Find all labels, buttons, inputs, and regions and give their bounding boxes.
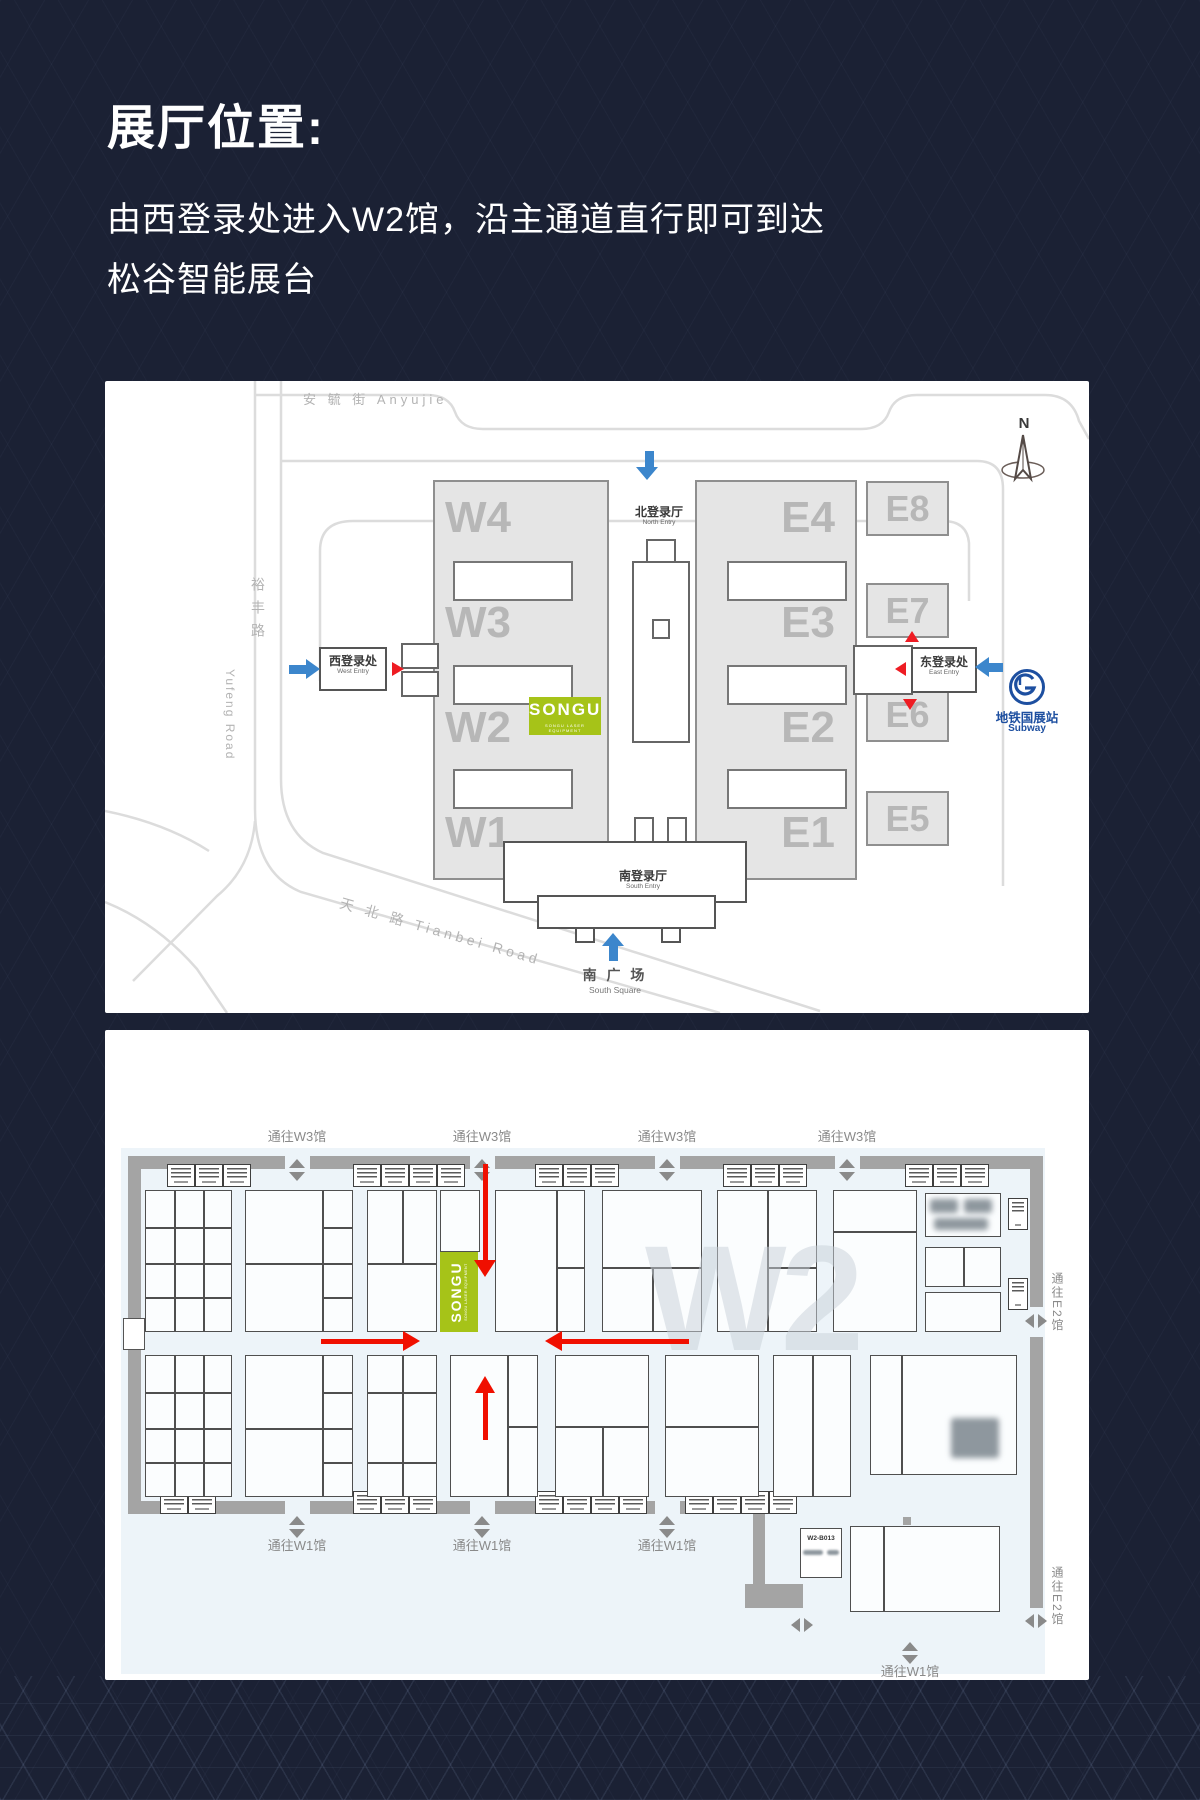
songu-booth: SONGU SONGU LASER EQUIPMENT <box>440 1252 478 1332</box>
west-entry-cn: 西登录处 <box>321 654 385 668</box>
booth-divider <box>883 1527 885 1611</box>
booth-divider <box>322 1227 352 1229</box>
songu-booth-text: SONGU <box>449 1261 464 1322</box>
south-entry-en: South Entry <box>583 883 703 891</box>
gate-label-e2: 通往E2馆 <box>1049 1272 1066 1333</box>
gate-arrow-icon <box>839 1159 855 1181</box>
overview-map-panel: 安 毓 街 Anyujie 裕丰路 Yufeng Road 天 北 路 Tian… <box>105 381 1089 1013</box>
booth-divider <box>556 1191 558 1331</box>
west-connector <box>401 643 439 669</box>
booth-divider <box>507 1426 537 1428</box>
west-entry-arrowhead-icon <box>306 659 320 679</box>
booth <box>495 1190 585 1332</box>
corridor-box <box>652 619 670 639</box>
booth-label <box>591 1164 619 1187</box>
booth-divider <box>203 1191 205 1331</box>
booth-label <box>905 1164 933 1187</box>
songu-booth-tagline: SONGU LASER EQUIPMENT <box>464 1261 469 1322</box>
booth-label <box>223 1164 251 1187</box>
road-label-yufeng-cn: 裕丰路 <box>248 577 268 646</box>
east-entry-en: East Entry <box>913 669 975 677</box>
songu-booth-logo: SONGU SONGU LASER EQUIPMENT <box>449 1261 469 1322</box>
booth-divider <box>146 1462 231 1464</box>
gate-label-w3: 通往W3馆 <box>432 1126 532 1145</box>
hall-label-w1: W1 <box>445 808 511 858</box>
booth <box>145 1355 232 1497</box>
booth-label <box>563 1164 591 1187</box>
booth-label <box>933 1164 961 1187</box>
gate-arrow-icon <box>1025 1614 1047 1628</box>
pillar <box>903 1517 911 1525</box>
booth-divider <box>146 1227 231 1229</box>
intro-line-1: 由西登录处进入W2馆，沿主通道直行即可到达 <box>107 192 825 241</box>
east-entry-box: 东登录处 East Entry <box>911 647 977 693</box>
booth <box>555 1355 649 1497</box>
gate-arrow-icon <box>791 1618 813 1632</box>
hall-e5: E5 <box>866 791 949 846</box>
booth-divider <box>402 1191 404 1263</box>
booth-label <box>751 1164 779 1187</box>
road-label-anyujie: 安 毓 街 Anyujie <box>303 389 447 408</box>
route-triangle-left-icon <box>895 662 906 676</box>
blurred-text <box>827 1550 839 1555</box>
booth-divider <box>368 1263 436 1265</box>
booth-divider <box>767 1191 769 1331</box>
south-square-arrow-icon <box>609 946 618 961</box>
south-entry-label: 南登录厅 South Entry <box>583 869 703 891</box>
dock-slot <box>727 561 847 601</box>
booth-label <box>779 1164 807 1187</box>
booth-divider <box>368 1462 436 1464</box>
annex-booth: W2-B013 <box>800 1528 842 1578</box>
booth-divider <box>146 1263 231 1265</box>
booth-divider <box>146 1297 231 1299</box>
booth <box>850 1526 1000 1612</box>
booth <box>245 1190 353 1332</box>
left-wall-booth <box>123 1318 145 1350</box>
booth <box>367 1190 437 1332</box>
blurred-text <box>964 1199 992 1213</box>
booth-label <box>195 1164 223 1187</box>
north-entry-label: 北登录厅 North Entry <box>610 505 708 527</box>
hall-label-e8: E8 <box>868 483 947 534</box>
north-entry-arrowhead-icon <box>636 467 658 480</box>
booth <box>245 1355 353 1497</box>
wall <box>1030 1156 1043 1307</box>
dock-slot <box>453 769 573 809</box>
booth <box>773 1355 851 1497</box>
booth-divider <box>322 1356 324 1496</box>
booth-divider <box>246 1263 352 1265</box>
wall <box>1030 1337 1043 1608</box>
wall <box>745 1584 803 1608</box>
booth-divider <box>556 1267 584 1269</box>
east-entry-arrowhead-icon <box>975 657 989 677</box>
booth-label <box>723 1164 751 1187</box>
booth-label <box>353 1164 381 1187</box>
route-arrowhead-up-icon <box>475 1376 495 1393</box>
intro-line-2: 松谷智能展台 <box>107 252 317 301</box>
hall-label-e6: E6 <box>868 689 947 740</box>
dock-slot <box>727 769 847 809</box>
hall-label-e7: E7 <box>868 585 947 636</box>
gate-arrow-icon <box>659 1516 675 1538</box>
booth-divider <box>834 1231 916 1233</box>
east-entry-cn: 东登录处 <box>913 655 975 669</box>
bottom-deco-pattern <box>0 1676 1200 1800</box>
route-arrow-down <box>483 1164 488 1262</box>
hall-label-e4: E4 <box>705 493 835 543</box>
songu-logo-text: SONGU <box>529 697 601 723</box>
blurred-text <box>930 1199 958 1213</box>
booth-divider <box>322 1462 352 1464</box>
dock-slot <box>727 665 847 705</box>
booth-label <box>409 1164 437 1187</box>
booth-label <box>961 1164 989 1187</box>
south-entry-cn: 南登录厅 <box>583 869 703 883</box>
booth <box>925 1292 1001 1332</box>
hall-e8: E8 <box>866 481 949 536</box>
booth <box>833 1190 917 1332</box>
central-corridor <box>632 561 690 743</box>
gate-arrow-icon <box>474 1516 490 1538</box>
gate-arrow-icon <box>659 1159 675 1181</box>
booth <box>870 1355 1017 1475</box>
annex-booth-number: W2-B013 <box>801 1535 841 1542</box>
booth-divider <box>203 1356 205 1496</box>
route-arrow-left <box>561 1339 689 1344</box>
booth-divider <box>602 1426 604 1496</box>
blurred-text <box>803 1550 823 1555</box>
booth-divider <box>402 1356 404 1496</box>
booth <box>602 1190 702 1332</box>
south-square-cn: 南 广 场 <box>555 965 675 985</box>
booth-divider <box>174 1356 176 1496</box>
route-triangle-up-icon <box>905 631 919 642</box>
wall <box>753 1514 765 1586</box>
blurred-text <box>951 1418 999 1458</box>
route-arrow-right <box>321 1339 405 1344</box>
route-arrowhead-down-icon <box>474 1260 496 1277</box>
hall-label-e2: E2 <box>705 703 835 753</box>
hall-label-w3: W3 <box>445 598 511 648</box>
dock-slot <box>453 561 573 601</box>
booth <box>367 1355 437 1497</box>
hall-label-e5: E5 <box>868 793 947 844</box>
booth-divider <box>146 1392 231 1394</box>
compass-n-label: N <box>1013 415 1035 433</box>
hall-label-w4: W4 <box>445 493 511 543</box>
booth-divider <box>963 1248 965 1286</box>
gate-arrow-icon <box>289 1159 305 1181</box>
booth-label <box>437 1164 465 1187</box>
south-entry-hall-lower <box>537 895 716 929</box>
booth-divider <box>812 1356 814 1496</box>
booth-divider <box>174 1191 176 1331</box>
booth <box>925 1247 1001 1287</box>
booth-divider <box>901 1356 903 1474</box>
south-entry-stub <box>575 927 595 943</box>
route-arrowhead-right-icon <box>403 1331 420 1351</box>
blurred-text <box>934 1218 988 1230</box>
south-square-arrowhead-icon <box>602 933 624 946</box>
gate-label-w3: 通往W3馆 <box>617 1126 717 1145</box>
west-connector <box>401 671 439 697</box>
east-entry-arrow-icon <box>989 663 1003 672</box>
songu-logo-overview: SONGU SONGU LASER EQUIPMENT <box>529 697 601 735</box>
gate-label-w3: 通往W3馆 <box>247 1126 347 1145</box>
booth-divider <box>666 1426 758 1428</box>
booth-divider <box>368 1392 436 1394</box>
booth-divider <box>322 1191 324 1331</box>
booth-divider <box>246 1428 352 1430</box>
hall-label-w2: W2 <box>445 703 511 753</box>
booth <box>440 1190 480 1252</box>
route-arrowhead-left-icon <box>545 1331 562 1351</box>
hall-e7: E7 <box>866 583 949 638</box>
facility-icon <box>1008 1198 1028 1230</box>
route-arrow-up <box>483 1392 488 1440</box>
north-entry-arrow-icon <box>645 451 654 467</box>
booth-blurred <box>925 1193 1001 1237</box>
booth-label <box>167 1164 195 1187</box>
hall-e6: E6 <box>866 687 949 742</box>
songu-logo-tagline: SONGU LASER EQUIPMENT <box>529 723 601 733</box>
west-entry-box: 西登录处 West Entry <box>319 647 387 691</box>
booth <box>717 1190 817 1332</box>
booth-divider <box>322 1297 352 1299</box>
route-triangle-right-icon <box>392 662 404 676</box>
booth-label <box>381 1164 409 1187</box>
route-triangle-down-icon <box>903 699 917 710</box>
booth-divider <box>652 1267 654 1331</box>
page-title: 展厅位置: <box>107 88 325 158</box>
subway-station-en: Subway <box>989 723 1065 734</box>
south-entry-stub <box>661 927 681 943</box>
north-entry-cn: 北登录厅 <box>610 505 708 519</box>
hall-label-e3: E3 <box>705 598 835 648</box>
facility-icon <box>1008 1278 1028 1310</box>
booth-divider <box>322 1392 352 1394</box>
south-square-label: 南 广 场 South Square <box>555 965 675 995</box>
road-label-yufeng-en: Yufeng Road <box>223 669 237 760</box>
compass-icon <box>1000 433 1046 495</box>
booth-divider <box>767 1267 816 1269</box>
floor-plan-panel: SONGU SONGU LASER EQUIPMENT <box>105 1030 1089 1680</box>
booth <box>665 1355 759 1497</box>
gate-arrow-icon <box>289 1516 305 1538</box>
west-entry-en: West Entry <box>321 668 385 676</box>
booth-label <box>535 1164 563 1187</box>
gate-arrow-icon <box>1025 1314 1047 1328</box>
south-square-en: South Square <box>555 985 675 995</box>
gate-arrow-icon <box>902 1642 918 1664</box>
gate-label-e2: 通往E2馆 <box>1049 1566 1066 1627</box>
subway-logo-icon <box>1009 669 1045 705</box>
gate-label-w3: 通往W3馆 <box>797 1126 897 1145</box>
booth <box>145 1190 232 1332</box>
booth-divider <box>146 1428 231 1430</box>
north-entry-en: North Entry <box>610 519 708 527</box>
west-entry-arrow-icon <box>289 665 306 674</box>
